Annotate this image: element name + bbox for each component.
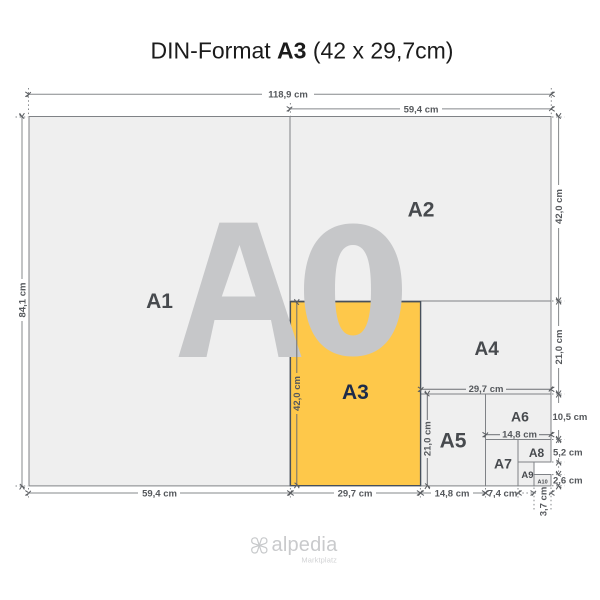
svg-text:14,8 cm: 14,8 cm (502, 430, 537, 441)
svg-text:A2: A2 (408, 199, 435, 222)
svg-text:29,7 cm: 29,7 cm (338, 488, 373, 499)
svg-text:A7: A7 (494, 455, 512, 471)
svg-text:DIN-Format A3 (42 x 29,7cm): DIN-Format A3 (42 x 29,7cm) (151, 38, 454, 64)
svg-text:A3: A3 (342, 381, 369, 404)
svg-text:Marktplatz: Marktplatz (301, 555, 337, 564)
svg-text:A9: A9 (521, 470, 533, 481)
svg-text:A4: A4 (475, 339, 500, 360)
svg-text:42,0 cm: 42,0 cm (292, 376, 303, 411)
svg-text:42,0 cm: 42,0 cm (554, 189, 565, 224)
svg-text:A6: A6 (511, 409, 529, 425)
svg-text:5,2 cm: 5,2 cm (553, 448, 583, 459)
svg-text:3,7 cm: 3,7 cm (538, 487, 549, 517)
svg-text:29,7 cm: 29,7 cm (469, 384, 504, 395)
svg-text:alpedia: alpedia (272, 534, 339, 556)
svg-text:A10: A10 (538, 479, 548, 485)
svg-text:14,8 cm: 14,8 cm (435, 488, 470, 499)
svg-text:A5: A5 (440, 429, 467, 452)
svg-text:118,9 cm: 118,9 cm (268, 90, 308, 101)
svg-text:21,0 cm: 21,0 cm (554, 330, 565, 365)
svg-text:2,6 cm: 2,6 cm (553, 476, 583, 487)
svg-text:A1: A1 (146, 290, 173, 313)
svg-text:84,1 cm: 84,1 cm (17, 283, 28, 318)
svg-text:7,4 cm: 7,4 cm (488, 488, 518, 499)
svg-text:59,4 cm: 59,4 cm (142, 488, 177, 499)
svg-text:10,5 cm: 10,5 cm (553, 412, 588, 423)
svg-text:A8: A8 (529, 446, 545, 460)
svg-text:59,4 cm: 59,4 cm (404, 104, 439, 115)
svg-text:21,0 cm: 21,0 cm (422, 421, 433, 456)
